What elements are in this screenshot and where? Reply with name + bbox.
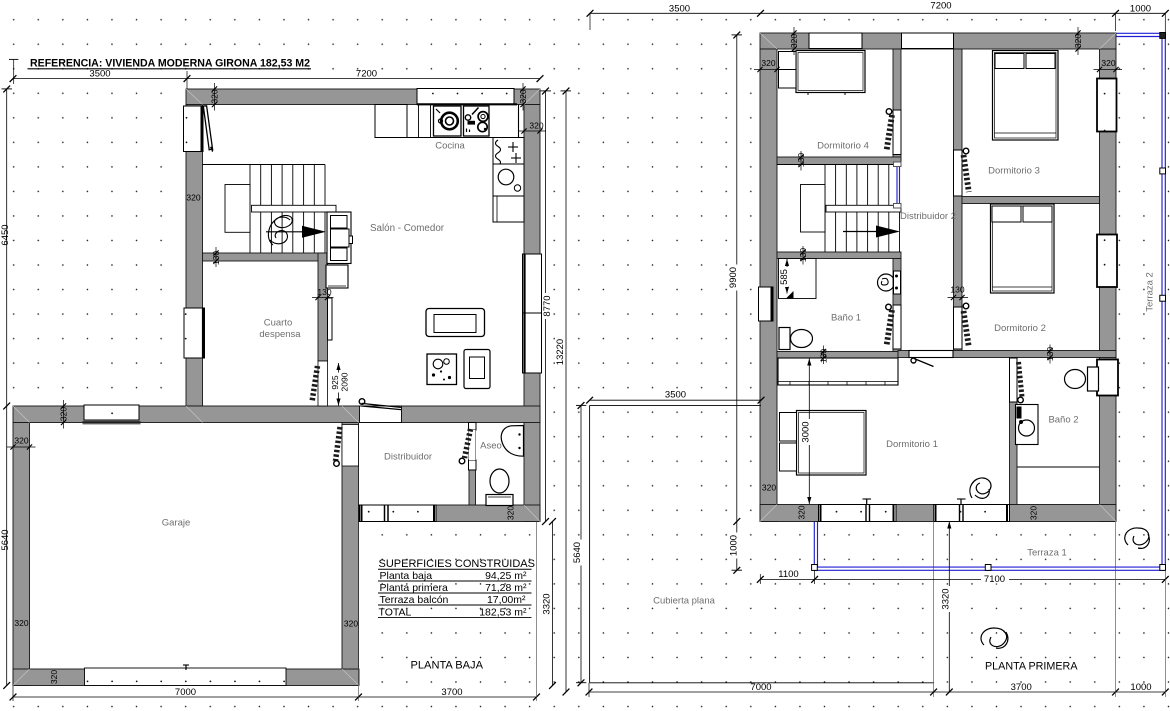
svg-text:3500: 3500 [669,4,690,15]
svg-text:320: 320 [14,436,28,446]
svg-text:320: 320 [1073,34,1083,48]
svg-text:1000: 1000 [729,535,740,556]
svg-text:1000: 1000 [1130,4,1151,15]
svg-text:320: 320 [186,193,200,203]
svg-text:7200: 7200 [356,69,377,80]
svg-text:8770: 8770 [542,295,553,316]
svg-text:5640: 5640 [0,529,11,550]
svg-text:13220: 13220 [555,339,566,365]
svg-text:7000: 7000 [175,687,196,698]
svg-text:6450: 6450 [0,224,11,245]
svg-text:Distribuidor: Distribuidor [384,452,432,463]
svg-text:TOTAL: TOTAL [379,607,412,619]
svg-text:Dormitorio 2: Dormitorio 2 [994,323,1046,334]
svg-text:5640: 5640 [572,542,583,563]
svg-text:3700: 3700 [1011,682,1032,693]
svg-text:17,00m²: 17,00m² [487,594,526,606]
svg-text:Baño 2: Baño 2 [1048,415,1078,426]
svg-text:Distribuidor 2: Distribuidor 2 [900,211,956,222]
svg-text:130: 130 [819,349,829,363]
svg-text:2090: 2090 [340,372,350,391]
svg-text:320: 320 [1029,506,1039,520]
svg-text:130: 130 [1045,347,1055,361]
svg-text:320: 320 [762,483,776,493]
svg-text:3700: 3700 [441,687,462,698]
svg-text:320: 320 [59,407,69,421]
svg-text:320: 320 [518,89,528,103]
svg-text:Dormitorio 4: Dormitorio 4 [817,141,869,152]
svg-text:3320: 3320 [542,593,553,614]
svg-text:Cocina: Cocina [435,141,465,152]
svg-text:Cubierta plana: Cubierta plana [653,596,716,607]
svg-text:94,25 m²: 94,25 m² [485,570,527,582]
svg-text:130: 130 [798,248,808,262]
svg-text:130: 130 [317,287,331,297]
svg-text:PLANTA PRIMERA: PLANTA PRIMERA [985,661,1078,673]
svg-text:320: 320 [789,34,799,48]
svg-text:Salón - Comedor: Salón - Comedor [370,223,445,234]
svg-text:320: 320 [210,89,220,103]
svg-text:1000: 1000 [1130,682,1151,693]
svg-text:320: 320 [14,618,28,628]
svg-text:Dormitorio 1: Dormitorio 1 [886,439,938,450]
svg-text:Terraza 1: Terraza 1 [1027,548,1067,559]
svg-text:182,53 m²: 182,53 m² [479,607,527,619]
svg-text:320: 320 [506,506,516,520]
svg-text:3000: 3000 [801,421,812,442]
svg-text:Terraza balcón: Terraza balcón [380,594,449,606]
svg-text:3500: 3500 [89,69,110,80]
svg-text:320: 320 [344,619,358,629]
svg-text:71,28 m²: 71,28 m² [485,582,527,594]
svg-text:Aseo: Aseo [480,441,502,452]
svg-text:SUPERFICIES CONSTRUIDAS: SUPERFICIES CONSTRUIDAS [379,558,535,570]
svg-text:Cuarto: Cuarto [264,318,293,329]
svg-text:130: 130 [211,251,221,265]
svg-text:320: 320 [761,58,775,68]
svg-text:7000: 7000 [750,682,771,693]
svg-text:Planta baja: Planta baja [380,570,433,582]
svg-text:130: 130 [950,285,964,295]
svg-text:925: 925 [330,375,340,389]
svg-text:despensa: despensa [259,329,301,340]
svg-text:Baño 1: Baño 1 [831,313,861,324]
svg-text:7200: 7200 [930,0,951,11]
svg-text:Dormitorio 3: Dormitorio 3 [988,166,1040,177]
svg-text:PLANTA BAJA: PLANTA BAJA [411,660,484,672]
svg-text:130: 130 [796,153,806,167]
svg-text:REFERENCIA: VIVIENDA MODERNA G: REFERENCIA: VIVIENDA MODERNA GIRONA 182,… [30,58,310,70]
svg-text:320: 320 [529,121,543,131]
svg-text:320: 320 [49,670,59,684]
svg-text:3500: 3500 [665,390,686,401]
svg-text:320: 320 [797,505,807,519]
svg-text:320: 320 [1101,58,1115,68]
svg-text:9900: 9900 [728,267,739,288]
svg-text:1100: 1100 [778,569,798,580]
svg-text:Planta primera: Planta primera [380,582,448,594]
svg-text:Terraza 2: Terraza 2 [1145,272,1156,312]
svg-text:Garaje: Garaje [162,518,191,529]
svg-text:3320: 3320 [941,588,952,609]
svg-text:585: 585 [779,269,790,285]
svg-text:7100: 7100 [984,574,1005,585]
